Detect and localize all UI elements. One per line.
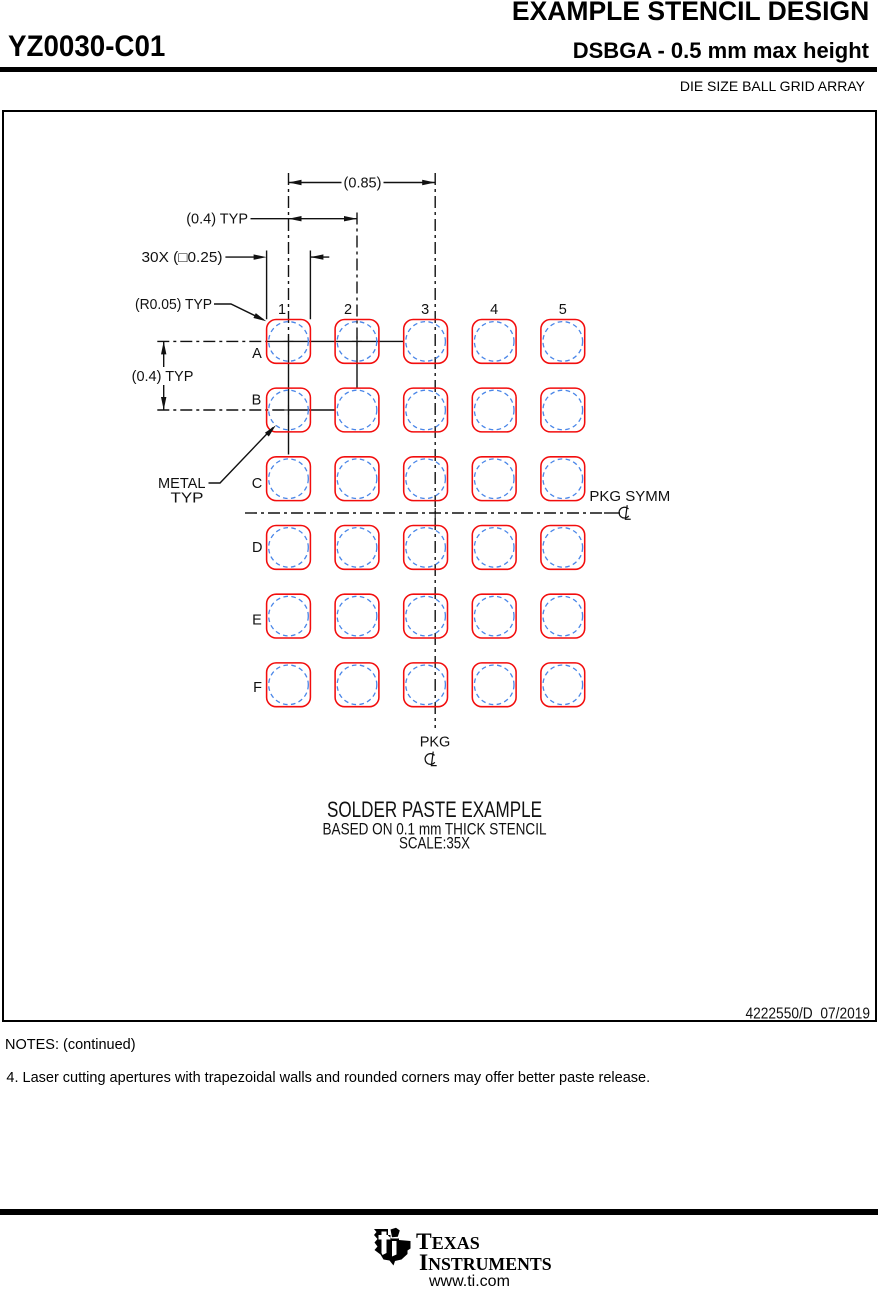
svg-text:(R0.05) TYP: (R0.05) TYP bbox=[135, 297, 212, 313]
svg-text:4222550/D 07/2019: 4222550/D 07/2019 bbox=[746, 1005, 871, 1022]
svg-text:F: F bbox=[253, 680, 262, 696]
svg-text:A: A bbox=[252, 346, 262, 362]
svg-text:(0.4) TYP: (0.4) TYP bbox=[186, 212, 248, 228]
svg-text:(0.4) TYP: (0.4) TYP bbox=[132, 369, 194, 385]
svg-text:SCALE:35X: SCALE:35X bbox=[399, 834, 470, 853]
svg-text:B: B bbox=[252, 392, 262, 408]
svg-text:4: 4 bbox=[490, 302, 498, 318]
svg-text:30X (□0.25): 30X (□0.25) bbox=[142, 250, 223, 266]
svg-text:3: 3 bbox=[421, 302, 429, 318]
svg-text:5: 5 bbox=[559, 302, 567, 318]
svg-text:PKG: PKG bbox=[420, 734, 451, 750]
svg-text:SOLDER PASTE EXAMPLE: SOLDER PASTE EXAMPLE bbox=[327, 797, 542, 822]
svg-text:(0.85): (0.85) bbox=[344, 175, 382, 191]
svg-text:D: D bbox=[252, 540, 262, 556]
svg-text:E: E bbox=[252, 612, 262, 628]
svg-text:2: 2 bbox=[344, 302, 352, 318]
svg-text:TYP: TYP bbox=[171, 490, 204, 506]
svg-text:C: C bbox=[252, 476, 262, 492]
svg-text:PKG SYMM: PKG SYMM bbox=[589, 488, 670, 505]
svg-text:1: 1 bbox=[278, 302, 286, 318]
